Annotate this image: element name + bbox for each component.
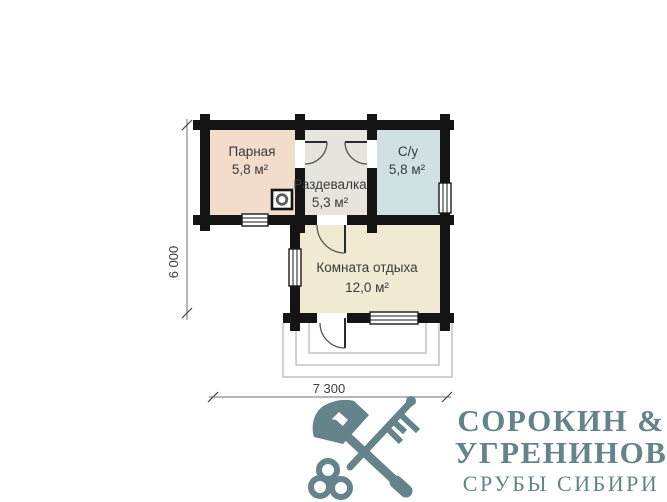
logo-line-2: УГРЕНИНОВ xyxy=(455,435,667,470)
area-razdevalka: 5,3 м² xyxy=(312,195,349,210)
window-komnata-left xyxy=(289,249,301,286)
window-su xyxy=(439,183,451,213)
area-su: 5,8 м² xyxy=(389,162,426,177)
wall-bottom xyxy=(283,313,454,323)
dimension-width-label: 7 300 xyxy=(313,381,346,396)
wall-right xyxy=(440,114,450,331)
label-komnata: Комната отдыха xyxy=(316,260,418,275)
label-parnaya: Парная xyxy=(229,144,276,159)
wall-razdevalka-su xyxy=(367,114,377,233)
area-komnata: 12,0 м² xyxy=(345,280,389,295)
logo-wordmark: СОРОКИН & УГРЕНИНОВ СРУБЫ СИБИРИ xyxy=(455,403,667,496)
area-parnaya: 5,8 м² xyxy=(232,162,269,177)
window-komnata-bottom xyxy=(370,312,418,324)
wall-parnaya-razdevalka xyxy=(295,114,305,233)
dimension-height-label: 6 000 xyxy=(166,246,181,279)
floor-plan-drawing: Парная 5,8 м² Раздевалка 5,3 м² С/у 5,8 … xyxy=(0,0,667,502)
window-parnaya xyxy=(242,214,268,226)
door-gap-entrance xyxy=(317,313,347,323)
logo-line-3: СРУБЫ СИБИРИ xyxy=(463,471,659,496)
door-gap-komnata xyxy=(317,215,347,225)
logo-line-1: СОРОКИН & xyxy=(457,403,664,438)
wall-left xyxy=(200,114,210,231)
door-gap-su xyxy=(367,140,377,168)
label-su: С/у xyxy=(398,144,419,159)
floor-plan-page: Парная 5,8 м² Раздевалка 5,3 м² С/у 5,8 … xyxy=(0,0,667,502)
label-razdevalka: Раздевалка xyxy=(293,177,367,192)
wall-top xyxy=(193,120,454,130)
door-gap-parnaya xyxy=(295,140,305,168)
stove-icon xyxy=(272,190,292,209)
